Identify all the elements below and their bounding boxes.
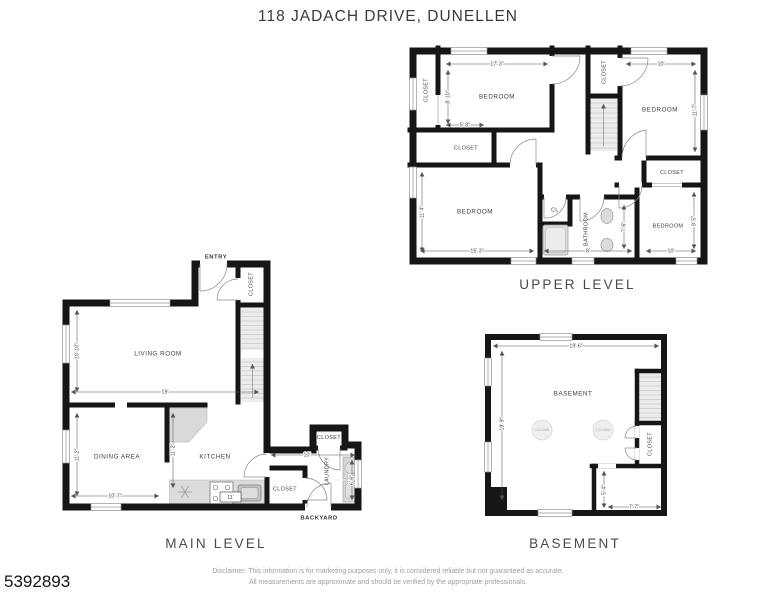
backyard-label: BACKYARD: [300, 516, 337, 522]
room-label-closet-left-lower: CLOSET: [454, 145, 478, 151]
room-label-laundry-closet: CLOSET: [317, 435, 341, 441]
entry-label: ENTRY: [205, 255, 227, 261]
dim-basement-depth: 19' 9": [499, 417, 505, 430]
stairs-upper: [590, 98, 617, 151]
doors: [436, 56, 683, 221]
walls: [488, 337, 664, 513]
room-label-basement-closet: CLOSET: [647, 432, 653, 456]
dim-kitchen-width: 11': [227, 495, 234, 501]
dim-storage-width: 7' 7": [629, 504, 639, 510]
stairs-main: [241, 308, 264, 402]
room-label-cl: CL: [551, 207, 559, 213]
dim-bedroom-tl-width: 17' 3": [490, 61, 503, 67]
room-label-bedroom-tl: BEDROOM: [479, 94, 515, 101]
dim-living-width: 19': [162, 389, 169, 395]
dim-storage-depth: 5' 4": [601, 485, 607, 495]
dim-kitchen-depth: 11' 2": [170, 443, 176, 456]
basement-label: BASEMENT: [480, 536, 670, 551]
room-label-closet-left: CLOSET: [423, 78, 429, 102]
room-label-laundry: LAUNDRY: [324, 457, 330, 485]
stairs-basement: [639, 373, 662, 421]
room-label-living-room: LIVING ROOM: [134, 351, 181, 358]
disclaimer-line-1: Disclaimer: This information is for mark…: [0, 567, 776, 578]
room-label-bathroom: BATHROOM: [583, 212, 589, 246]
page-title: 118 JADACH DRIVE, DUNELLEN: [0, 8, 776, 26]
svg-text:COLUMN: COLUMN: [595, 428, 611, 432]
dim-living-depth: 10' 10": [74, 343, 80, 359]
disclaimer: Disclaimer: This information is for mark…: [0, 567, 776, 588]
room-label-kitchen-closet: CLOSET: [273, 486, 297, 492]
dim-dining-depth: 11' 2": [74, 448, 80, 461]
dim-laundry-width: 10': [304, 452, 311, 458]
room-label-entry-closet: CLOSET: [248, 272, 254, 296]
chimney-block: [485, 487, 507, 513]
dim-bedroom-tr-depth: 11' 7": [692, 103, 698, 116]
dim-bedroom-tl-depth: 8' 10": [445, 90, 451, 103]
floorplan-page: 118 JADACH DRIVE, DUNELLEN: [0, 0, 776, 600]
dim-bedroom-br-width: 10': [668, 248, 675, 254]
room-label-kitchen: KITCHEN: [199, 454, 230, 461]
kitchen-peninsula-counter: [169, 408, 207, 442]
room-label-bedroom-bl: BEDROOM: [457, 209, 493, 216]
floorplan-upper-level: CLOSET BEDROOM CLOSET CLOSET BEDROOM BED…: [402, 40, 717, 272]
dim-bedroom-br-depth: 9' 5": [691, 216, 697, 226]
floorplan-basement: COLUMN COLUMN BASEMENT CLOSET 19' 6" 19'…: [480, 332, 675, 527]
column-right: COLUMN: [593, 420, 613, 440]
room-label-dining-area: DINING AREA: [94, 454, 140, 461]
dim-dining-width: 10' 7": [108, 493, 121, 499]
dim-laundry-depth: 6' 6": [349, 475, 355, 485]
room-label-bedroom-br: BEDROOM: [653, 223, 684, 229]
svg-text:COLUMN: COLUMN: [534, 428, 550, 432]
kitchen-sink: [238, 485, 261, 501]
toilet: [601, 209, 613, 224]
dim-bedroom-bl-width: 15' 3": [470, 248, 483, 254]
dim-basement-width: 19' 6": [569, 343, 582, 349]
main-level-label: MAIN LEVEL: [55, 536, 377, 551]
room-label-closet-hall: CLOSET: [601, 60, 607, 84]
room-label-closet-br: CLOSET: [660, 170, 684, 176]
column-left: COLUMN: [532, 420, 552, 440]
bathtub: [543, 225, 568, 255]
dim-bedroom-tr-width: 10': [658, 61, 665, 67]
room-label-basement: BASEMENT: [554, 391, 593, 398]
room-label-bedroom-tr: BEDROOM: [642, 107, 678, 114]
dim-closet-offset: 5' 8": [460, 122, 470, 128]
dim-bathroom-depth: 7' 6": [621, 222, 627, 232]
upper-level-label: UPPER LEVEL: [420, 277, 735, 292]
floorplan-main-level: ENTRY CLOSET LIVING ROOM DINING AREA KIT…: [55, 250, 370, 528]
dim-bathroom-width: 8': [586, 248, 590, 254]
disclaimer-line-2: All measurements are approximate and sho…: [0, 578, 776, 589]
bathroom-sink: [601, 239, 613, 252]
dim-bedroom-bl-depth: 11' 4": [419, 205, 425, 218]
